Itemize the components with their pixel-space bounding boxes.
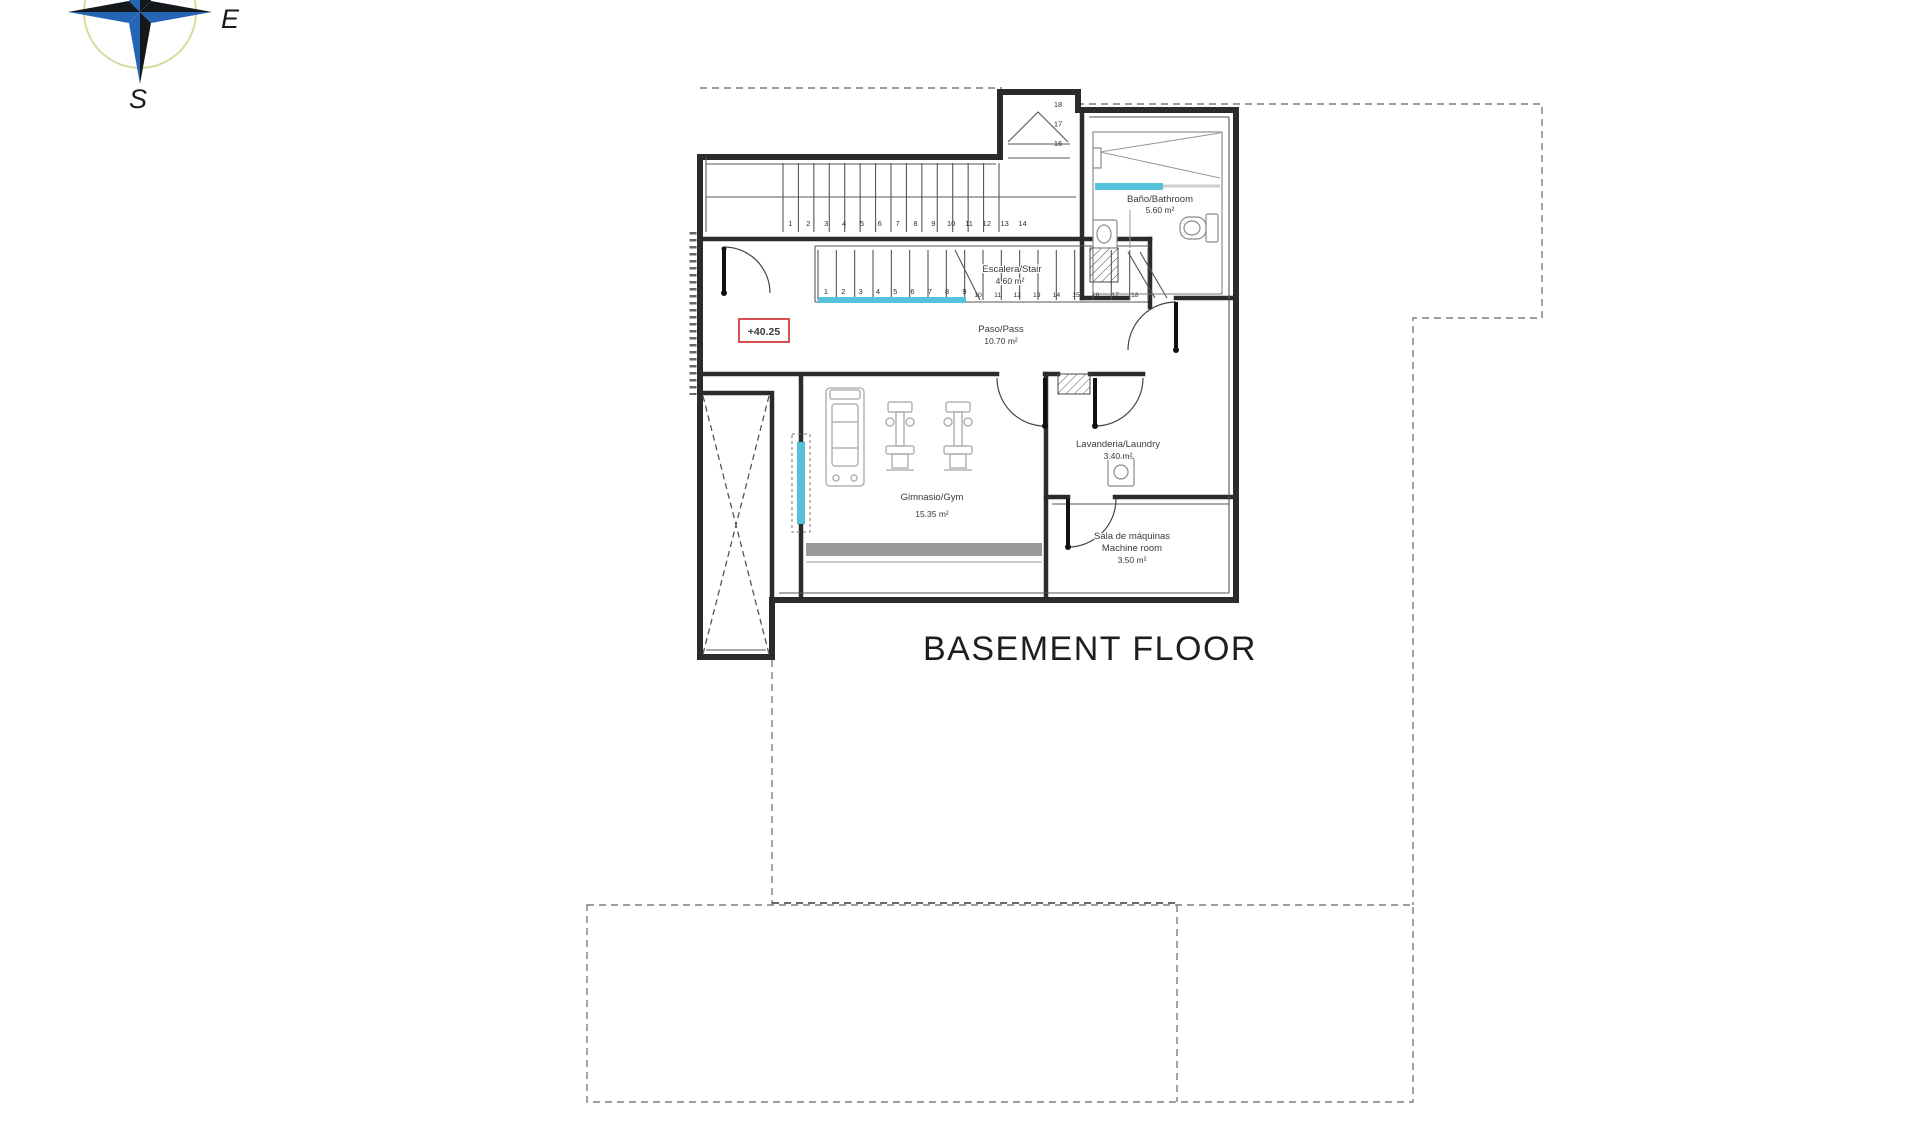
stair-numbers-lower-b: 101112131415161718 — [974, 292, 1139, 299]
stair-step-number: 18 — [1131, 292, 1139, 299]
stair-step-number: 4 — [842, 219, 846, 228]
exercise-machine-icon — [886, 402, 914, 470]
treadmill-icon — [826, 388, 864, 486]
building-walls — [693, 92, 1236, 657]
bathroom-room-area: 5.60 m² — [1146, 205, 1175, 215]
stair-step-number: 13 — [1001, 219, 1009, 228]
stair-step-number: 1 — [824, 287, 828, 296]
stair-step-number: 7 — [928, 287, 932, 296]
stair-step-number: 12 — [983, 219, 991, 228]
gym-window — [792, 434, 810, 532]
stair-step-number: 7 — [896, 219, 900, 228]
stair-step-number: 5 — [893, 287, 897, 296]
stair-numbers-upper: 1234567891011121314 — [788, 219, 1026, 228]
machine-room-area: 3.50 m² — [1118, 555, 1147, 565]
stair-step-number: 3 — [824, 219, 828, 228]
compass-east-label: E — [221, 4, 240, 34]
stair-step-number: 10 — [947, 219, 955, 228]
hall-room-area: 10.70 m² — [984, 336, 1018, 346]
stair-highlight-strip — [818, 297, 966, 303]
stair-numbers-lower-a: 123456789 — [824, 287, 967, 296]
stair-room-label: Escalera/Stair — [982, 264, 1041, 275]
stair-step-number: 8 — [945, 287, 949, 296]
lightwell-shaft — [703, 396, 769, 654]
laundry-room-label: Lavanderia/Laundry — [1076, 439, 1160, 450]
floor-plan-page: E S 1234567891011 — [0, 0, 1920, 1140]
shower-head-icon — [1093, 148, 1101, 168]
stair-step-number: 12 — [1013, 292, 1021, 299]
machine-room-label-en: Machine room — [1102, 543, 1162, 554]
sink-icon — [1093, 220, 1117, 248]
stair-step-number: 17 — [1054, 120, 1062, 129]
stair-step-number: 17 — [1111, 292, 1119, 299]
stair-step-number: 13 — [1033, 292, 1041, 299]
stair-step-number: 2 — [841, 287, 845, 296]
gym-bench-strip — [806, 543, 1042, 556]
hall-room-label: Paso/Pass — [978, 324, 1024, 335]
gym-equipment — [806, 388, 1042, 562]
gym-room-area: 15.35 m² — [915, 509, 949, 519]
stair-step-number: 14 — [1053, 292, 1061, 299]
stair-room-area: 4.60 m² — [996, 276, 1025, 286]
machine-room-label-es: Sala de máquinas — [1094, 531, 1170, 542]
stair-step-number: 18 — [1054, 100, 1062, 109]
stair-step-number: 14 — [1018, 219, 1026, 228]
stair-step-number: 16 — [1054, 139, 1062, 148]
stair-step-number: 11 — [965, 219, 973, 228]
shower-glass-icon — [1100, 133, 1220, 178]
stair-step-number: 9 — [962, 287, 966, 296]
compass-rose: E S — [68, 0, 240, 114]
stair-turn-upper: 181716 — [1008, 100, 1070, 158]
floor-plan-canvas: E S 1234567891011 — [0, 0, 1920, 1140]
stair-step-number: 2 — [806, 219, 810, 228]
stair-step-number: 6 — [910, 287, 914, 296]
shower-glass-strip — [1095, 183, 1163, 190]
laundry-room-area: 3.40 m² — [1104, 451, 1133, 461]
stair-step-number: 5 — [860, 219, 864, 228]
level-marker-value: +40.25 — [748, 326, 781, 338]
stair-step-number: 15 — [1072, 292, 1080, 299]
stair-step-number: 8 — [913, 219, 917, 228]
gym-room-label: Gimnasio/Gym — [901, 492, 964, 503]
stair-step-number: 3 — [859, 287, 863, 296]
stair-step-number: 1 — [788, 219, 792, 228]
washing-machine-icon — [1108, 458, 1134, 486]
stair-step-number: 9 — [931, 219, 935, 228]
stair-numbers-turn: 181716 — [1054, 100, 1062, 148]
stair-flight-upper: 1234567891011121314 — [706, 163, 1076, 232]
bathroom-room-label: Baño/Bathroom — [1127, 194, 1193, 205]
stair-step-number: 11 — [994, 292, 1001, 299]
stair-step-number: 10 — [974, 292, 982, 299]
stair-step-number: 6 — [878, 219, 882, 228]
toilet-icon — [1180, 214, 1218, 242]
exercise-machine-icon — [944, 402, 972, 470]
compass-south-label: S — [129, 84, 147, 114]
level-marker: +40.25 — [739, 319, 789, 342]
stair-step-number: 4 — [876, 287, 880, 296]
floor-title: BASEMENT FLOOR — [923, 630, 1257, 668]
